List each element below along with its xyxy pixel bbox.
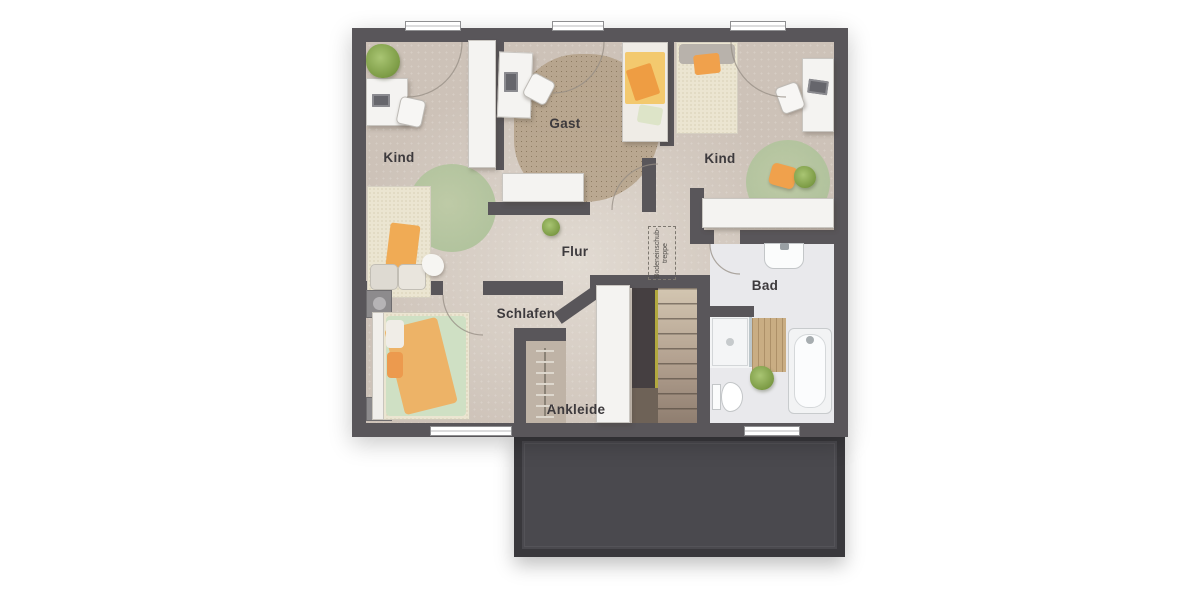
lower-roof-edge bbox=[524, 443, 835, 547]
window-top-kind-left bbox=[405, 21, 461, 31]
plant-flur bbox=[542, 218, 560, 236]
room-label-flur: Flur bbox=[540, 244, 610, 259]
sideboard-flur bbox=[502, 173, 584, 202]
window-bottom-bad bbox=[744, 426, 800, 436]
wall-closet-left bbox=[514, 328, 526, 423]
desk-kind-right bbox=[802, 58, 834, 132]
bed-gast-pillow bbox=[637, 104, 664, 126]
toilet-tank bbox=[712, 384, 721, 410]
wall-gast-flur bbox=[642, 158, 656, 212]
laptop-kind-right bbox=[807, 79, 829, 96]
stair-landing bbox=[632, 388, 658, 423]
blanket-orange-kind-left bbox=[385, 222, 420, 269]
laptop-kind-left bbox=[372, 94, 390, 107]
dresser-kind-right bbox=[702, 198, 834, 228]
faucet-sink bbox=[780, 243, 789, 250]
floor-plan: Bodeneinschub- treppe bbox=[352, 28, 848, 437]
stair-handrail bbox=[655, 290, 658, 388]
room-label-schlafen: Schlafen bbox=[486, 306, 566, 321]
wall-under-sideboard bbox=[488, 202, 590, 215]
wall-flur-schlafen bbox=[483, 281, 563, 295]
attic-hatch-label: Bodeneinschub- treppe bbox=[654, 228, 670, 279]
staircase bbox=[658, 288, 697, 423]
bed-schlafen-headboard bbox=[372, 312, 384, 420]
wall-kindright-bad-left bbox=[690, 230, 714, 244]
bath-mat-wood bbox=[752, 318, 786, 372]
room-label-kind-right: Kind bbox=[690, 151, 750, 166]
plant-kind-right bbox=[794, 166, 816, 188]
window-top-gast bbox=[552, 21, 604, 31]
plant-bad bbox=[750, 366, 774, 390]
bed-schlafen-pillow-white bbox=[386, 320, 404, 348]
lamp-schlafen-top bbox=[373, 297, 386, 310]
lower-roof bbox=[514, 433, 845, 557]
bathtub-basin bbox=[794, 334, 826, 408]
room-label-gast: Gast bbox=[530, 116, 600, 131]
pillow-kind-right-orange bbox=[693, 53, 721, 76]
window-bottom-schlafen bbox=[430, 426, 512, 436]
wall-shower bbox=[700, 306, 754, 317]
room-label-kind-left: Kind bbox=[369, 150, 429, 165]
wardrobe-kind-left bbox=[468, 40, 496, 168]
stool-kind-left bbox=[422, 254, 444, 276]
plant-kind-left bbox=[366, 44, 400, 78]
window-top-kind-right bbox=[730, 21, 786, 31]
wall-stairs-bad bbox=[697, 275, 710, 423]
room-label-bad: Bad bbox=[735, 278, 795, 293]
faucet-bathtub bbox=[806, 336, 814, 344]
laptop-gast bbox=[504, 72, 518, 92]
bed-schlafen-pillow-orange bbox=[387, 352, 403, 378]
wall-kindright-bad-right bbox=[740, 230, 834, 244]
shower-drain bbox=[726, 338, 734, 346]
room-label-ankleide: Ankleide bbox=[528, 402, 624, 417]
floor-plan-page: Bodeneinschub- treppe bbox=[0, 0, 1200, 600]
pillow-kind-left-1 bbox=[370, 264, 398, 290]
attic-hatch: Bodeneinschub- treppe bbox=[648, 226, 676, 280]
